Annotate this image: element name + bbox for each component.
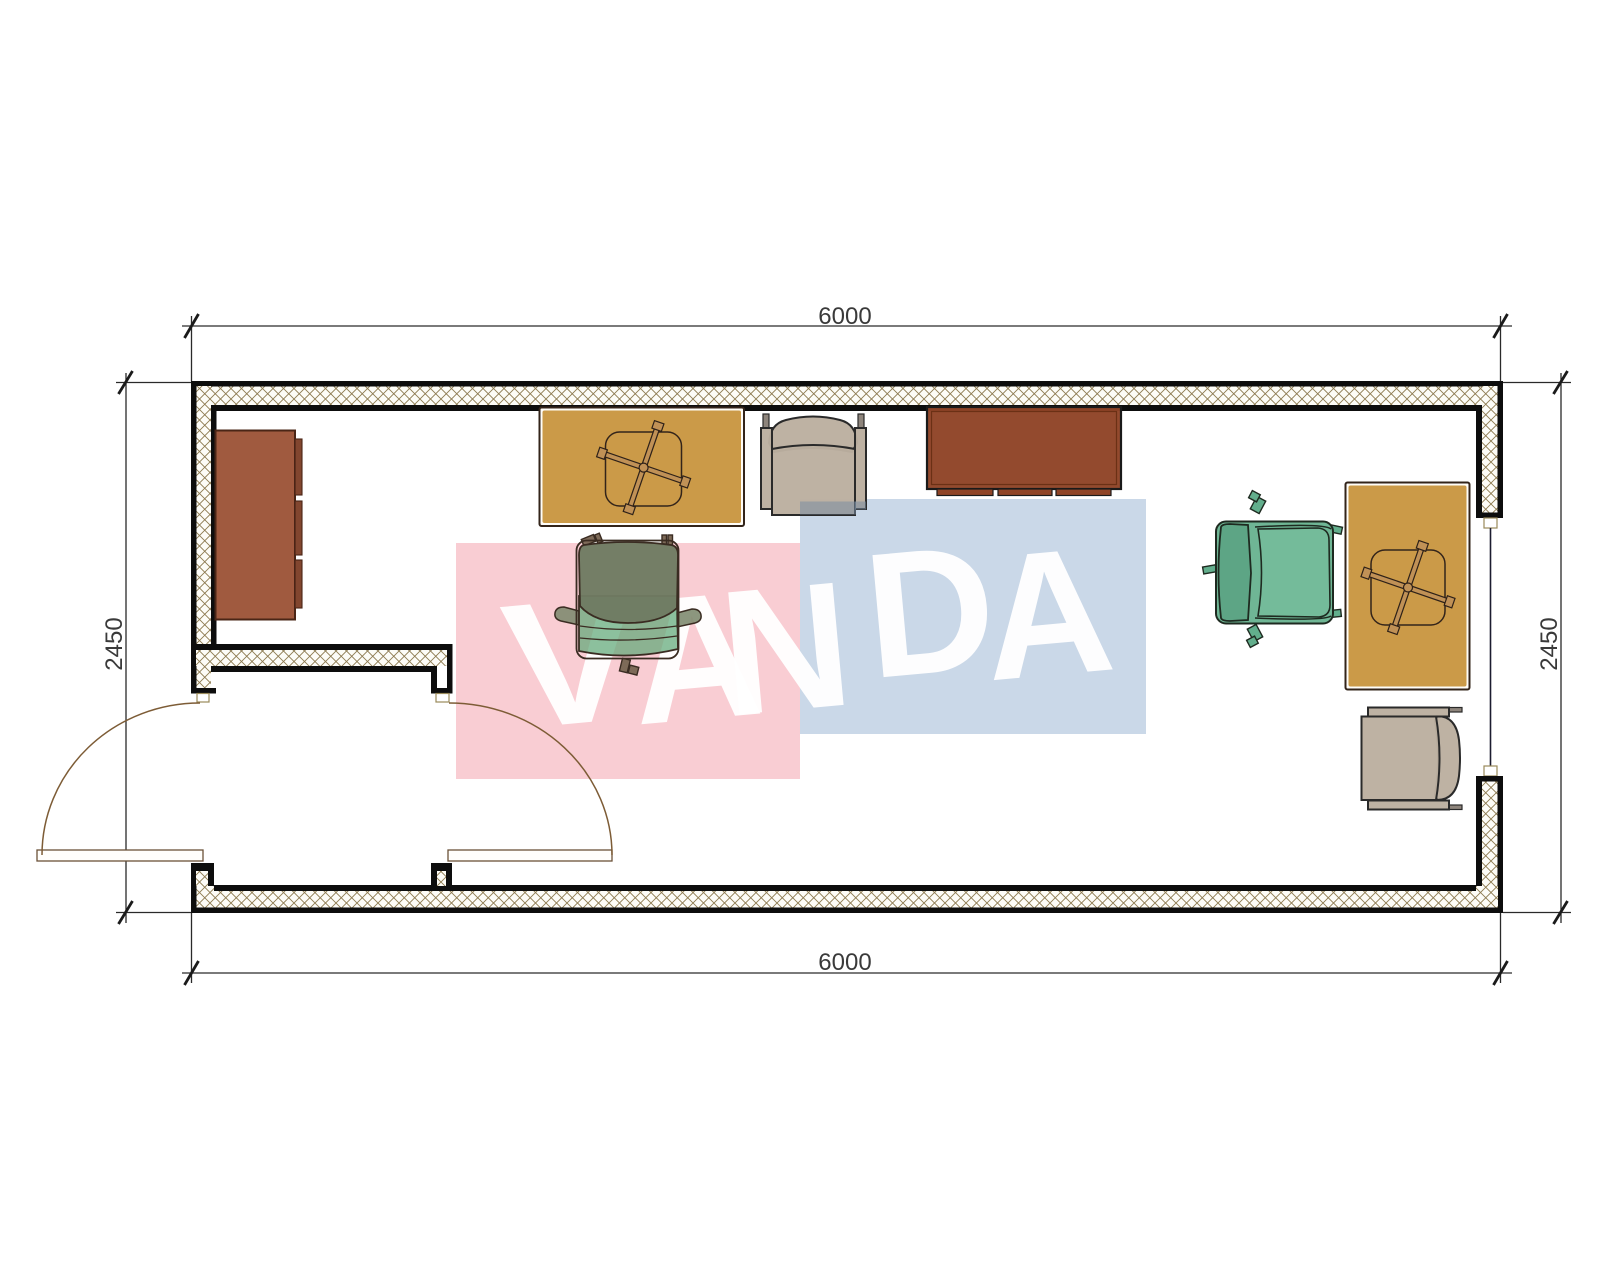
svg-text:A: A: [975, 509, 1121, 719]
svg-text:2450: 2450: [1536, 617, 1563, 670]
svg-text:2450: 2450: [101, 617, 128, 670]
svg-text:N: N: [713, 543, 859, 753]
svg-text:6000: 6000: [818, 303, 871, 330]
svg-text:6000: 6000: [818, 949, 871, 976]
